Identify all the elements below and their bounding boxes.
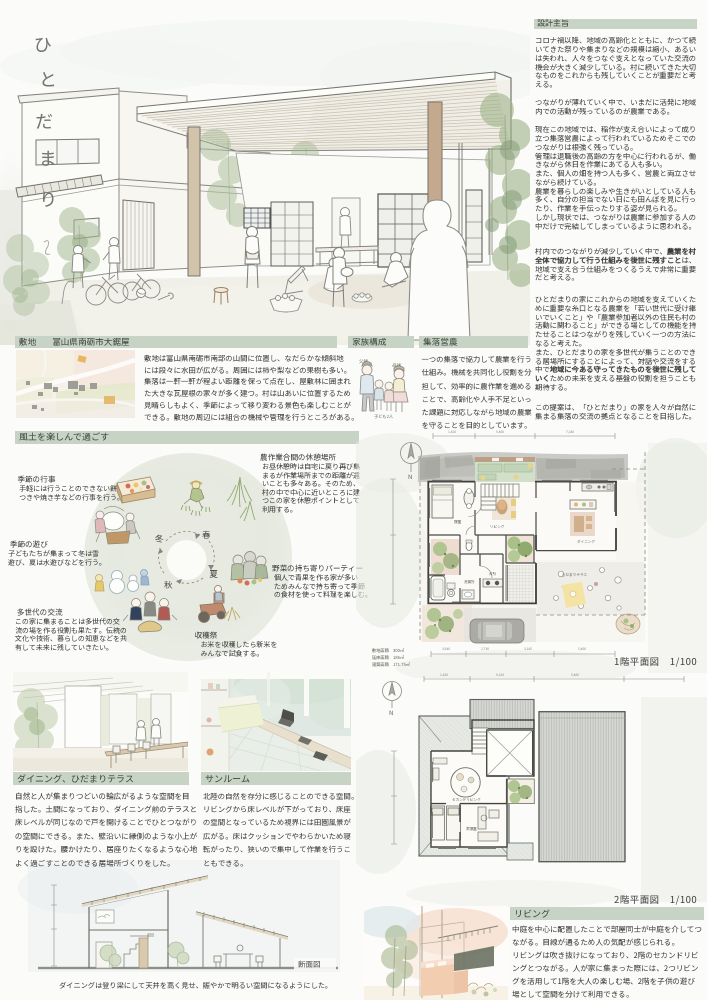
svg-text:ひだまりテラス: ひだまりテラス [562,572,588,578]
svg-text:子ども2人: 子ども2人 [374,414,394,420]
svg-text:2階平面図 1/100: 2階平面図 1/100 [614,892,697,906]
svg-text:5,460: 5,460 [571,672,579,677]
svg-text:敷地面積 300㎡: 敷地面積 300㎡ [372,647,405,654]
svg-text:寝室: 寝室 [453,520,462,525]
svg-text:1,820: 1,820 [440,672,448,677]
svg-text:5,460: 5,460 [578,646,586,651]
svg-text:2,730: 2,730 [481,646,489,651]
svg-text:N: N [408,472,412,481]
svg-text:台所: 台所 [489,571,497,577]
svg-text:ダイニング: ダイニング [577,539,595,545]
svg-text:建築面積 171.75㎡: 建築面積 171.75㎡ [372,662,411,668]
svg-text:1階平面図 1/100: 1階平面図 1/100 [614,654,697,668]
svg-text:セカンドリビング: セカンドリビング [452,797,481,803]
svg-text:3,185: 3,185 [524,646,532,651]
svg-text:洗面所: 洗面所 [463,579,475,585]
svg-text:断面図: 断面図 [298,959,321,970]
svg-text:リビング: リビング [490,524,505,530]
svg-text:3,640: 3,640 [442,646,450,651]
svg-text:延床面積 186㎡: 延床面積 186㎡ [372,655,405,661]
svg-text:主寝室: 主寝室 [465,826,477,832]
svg-text:5,460: 5,460 [496,429,504,434]
svg-text:1,820: 1,820 [448,429,456,434]
svg-text:9,100: 9,100 [496,672,504,677]
svg-text:7,280: 7,280 [566,429,574,434]
svg-text:N: N [389,708,393,717]
